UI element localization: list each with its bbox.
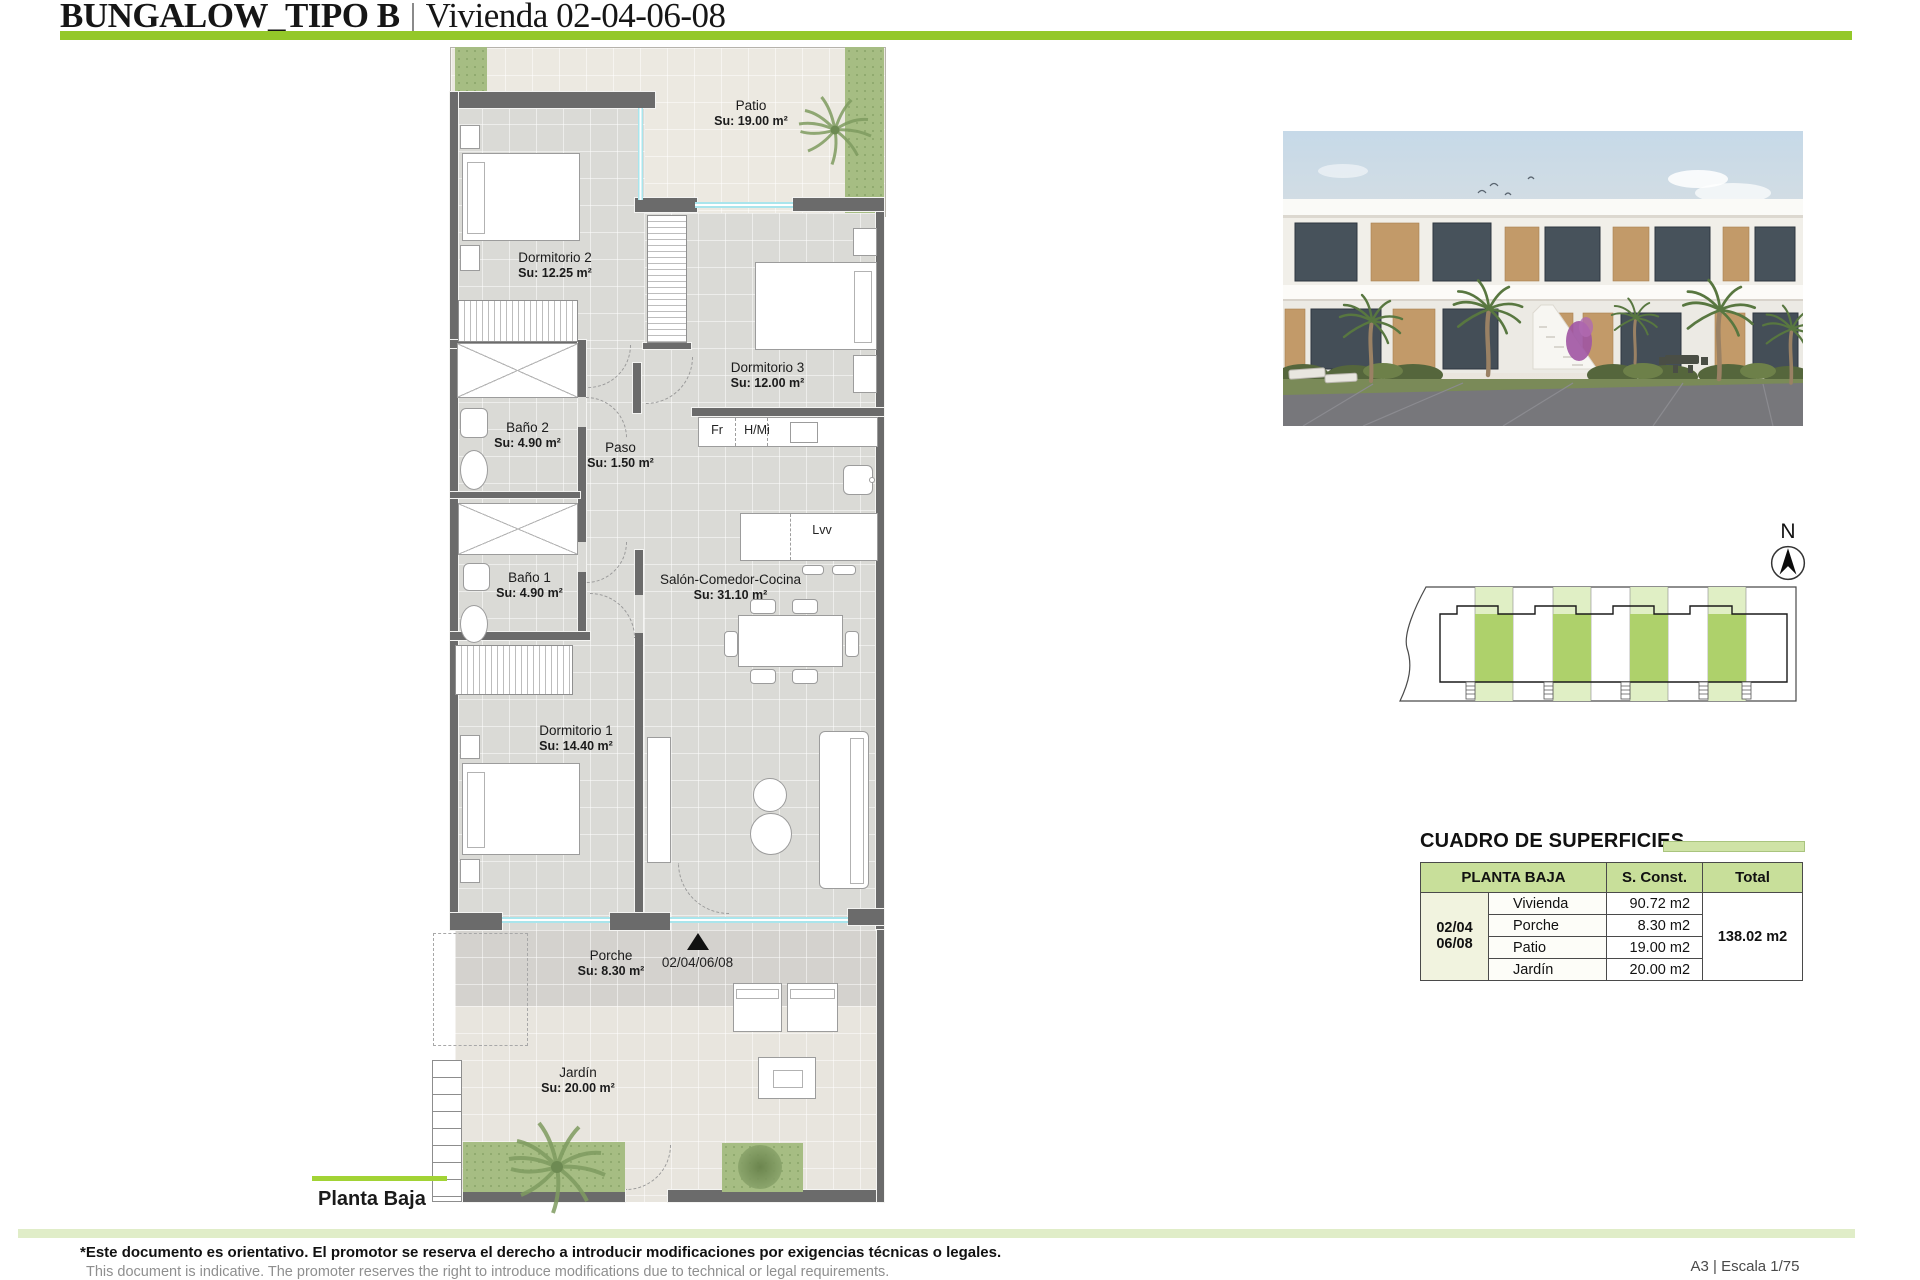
wall — [692, 408, 884, 416]
floor-caption: Planta Baja — [318, 1188, 426, 1211]
compass-icon — [1769, 544, 1807, 582]
row-name: Vivienda — [1489, 893, 1607, 915]
header-total: Total — [1703, 863, 1803, 893]
garden-bush — [738, 1145, 782, 1189]
oven-micro-label: H/Mi — [734, 423, 780, 437]
wall — [635, 198, 697, 212]
lounge-chair — [733, 983, 782, 1032]
north-label: N — [1762, 520, 1814, 544]
surfaces-table: PLANTA BAJA S. Const. Total 02/04 06/08 … — [1420, 862, 1803, 981]
nightstand — [853, 355, 877, 393]
header-s-const: S. Const. — [1607, 863, 1703, 893]
hall-closet — [647, 215, 687, 343]
armchair — [750, 813, 792, 855]
wall — [450, 913, 502, 930]
dining-chair — [792, 669, 818, 684]
site-plan — [1392, 582, 1802, 707]
header-planta-baja: PLANTA BAJA — [1421, 863, 1607, 893]
entrance-units-label: 02/04/06/08 — [655, 955, 740, 970]
sliding-door — [670, 917, 848, 923]
nightstand — [460, 735, 480, 759]
row-name: Patio — [1489, 937, 1607, 959]
nightstand — [460, 125, 480, 149]
window — [502, 917, 610, 923]
building-photo — [1283, 131, 1803, 426]
wardrobe — [455, 645, 573, 695]
disclaimer-es: *Este documento es orientativo. El promo… — [80, 1244, 1001, 1261]
nightstand — [460, 859, 480, 883]
surfaces-table-accent-bar — [1663, 841, 1805, 852]
row-value: 20.00 m2 — [1607, 959, 1703, 981]
dining-chair — [750, 669, 776, 684]
row-value: 8.30 m2 — [1607, 915, 1703, 937]
dining-chair — [845, 631, 859, 657]
bed — [755, 262, 877, 350]
floor-plan: 02/04/06/08 PatioSu: 19.00 m² Dormitorio… — [450, 45, 885, 1210]
room-label-jardin: JardínSu: 20.00 m² — [498, 1065, 658, 1096]
row-name: Porche — [1489, 915, 1607, 937]
dining-table — [738, 615, 843, 667]
disclaimer-en: This document is indicative. The promote… — [86, 1264, 889, 1280]
room-label-dormitorio1: Dormitorio 1Su: 14.40 m² — [496, 723, 656, 754]
north-indicator: N — [1762, 520, 1814, 587]
lounge-chair — [787, 983, 838, 1032]
sofa — [819, 731, 869, 889]
room-label-patio: PatioSu: 19.00 m² — [676, 98, 826, 129]
garden-wall — [877, 930, 884, 1202]
title-divider — [412, 3, 414, 31]
armchair — [753, 778, 787, 812]
sink — [790, 422, 818, 443]
washbasin — [460, 450, 488, 490]
row-name: Jardín — [1489, 959, 1607, 981]
footer-accent-strip — [18, 1229, 1855, 1238]
bed — [462, 153, 580, 241]
heater-handle — [869, 477, 875, 483]
room-label-bano1: Baño 1Su: 4.90 m² — [462, 570, 597, 601]
upper-stair-outline — [433, 933, 528, 1046]
wall — [610, 913, 670, 930]
washbasin — [460, 605, 488, 643]
window — [695, 202, 793, 208]
unit-group-cell: 02/04 06/08 — [1421, 893, 1489, 981]
wall — [848, 909, 884, 925]
room-label-dormitorio3: Dormitorio 3Su: 12.00 m² — [685, 360, 850, 391]
wall — [643, 343, 691, 349]
row-value: 90.72 m2 — [1607, 893, 1703, 915]
room-label-porche: PorcheSu: 8.30 m² — [556, 948, 666, 979]
window — [638, 108, 643, 200]
shower-tray — [457, 343, 578, 398]
kitchen-island — [740, 513, 878, 561]
surfaces-table-title: CUADRO DE SUPERFICIES — [1420, 830, 1684, 853]
room-label-dormitorio2: Dormitorio 2Su: 12.25 m² — [475, 250, 635, 281]
table-header-row: PLANTA BAJA S. Const. Total — [1421, 863, 1803, 893]
wall — [633, 363, 641, 413]
garden-palm-tree — [497, 1107, 617, 1227]
side-table — [758, 1057, 816, 1099]
wall — [876, 198, 884, 930]
table-row: 02/04 06/08 Vivienda 90.72 m2 138.02 m2 — [1421, 893, 1803, 915]
door-opening — [578, 542, 586, 572]
caption-underline — [312, 1176, 447, 1181]
room-label-salon: Salón-Comedor-CocinaSu: 31.10 m² — [608, 572, 853, 603]
wall — [793, 198, 884, 211]
dishwasher-label: Lvv — [792, 523, 852, 537]
dining-chair — [724, 631, 738, 657]
wall — [450, 92, 458, 930]
wardrobe — [458, 300, 578, 342]
wall — [450, 92, 655, 108]
tv-cabinet — [647, 737, 671, 863]
row-value: 19.00 m2 — [1607, 937, 1703, 959]
fridge-label: Fr — [700, 423, 734, 437]
plan-sheet-page: BUNGALOW_TIPO B Vivienda 02-04-06-08 — [0, 0, 1920, 1280]
upper-floor — [1283, 199, 1803, 287]
island-divider — [790, 514, 791, 560]
title-underline-bar — [60, 31, 1852, 40]
shower-tray — [458, 503, 578, 555]
room-label-paso: PasoSu: 1.50 m² — [563, 440, 678, 471]
bed — [462, 763, 580, 855]
sheet-scale-info: A3 | Escala 1/75 — [1660, 1258, 1830, 1275]
entrance-marker — [687, 933, 709, 950]
total-cell: 138.02 m2 — [1703, 893, 1803, 981]
wall — [450, 492, 580, 498]
nightstand — [853, 228, 877, 256]
